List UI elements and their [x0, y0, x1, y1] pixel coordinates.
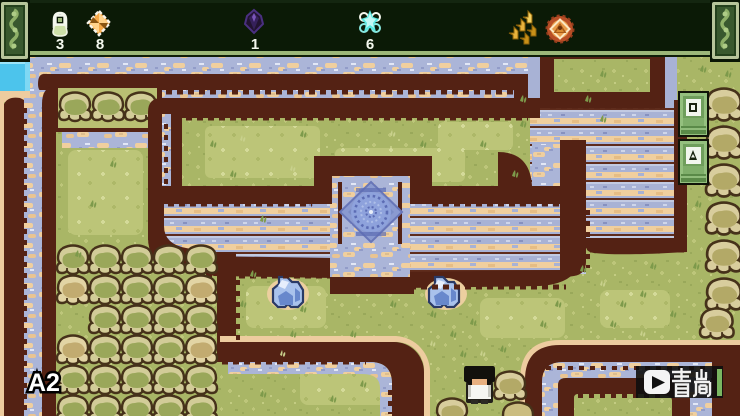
svg-text:3: 3	[56, 36, 64, 53]
svg-text:A2: A2	[28, 369, 60, 397]
svg-text:1: 1	[251, 36, 259, 53]
svg-text:8: 8	[96, 36, 104, 53]
svg-text:6: 6	[366, 36, 374, 53]
